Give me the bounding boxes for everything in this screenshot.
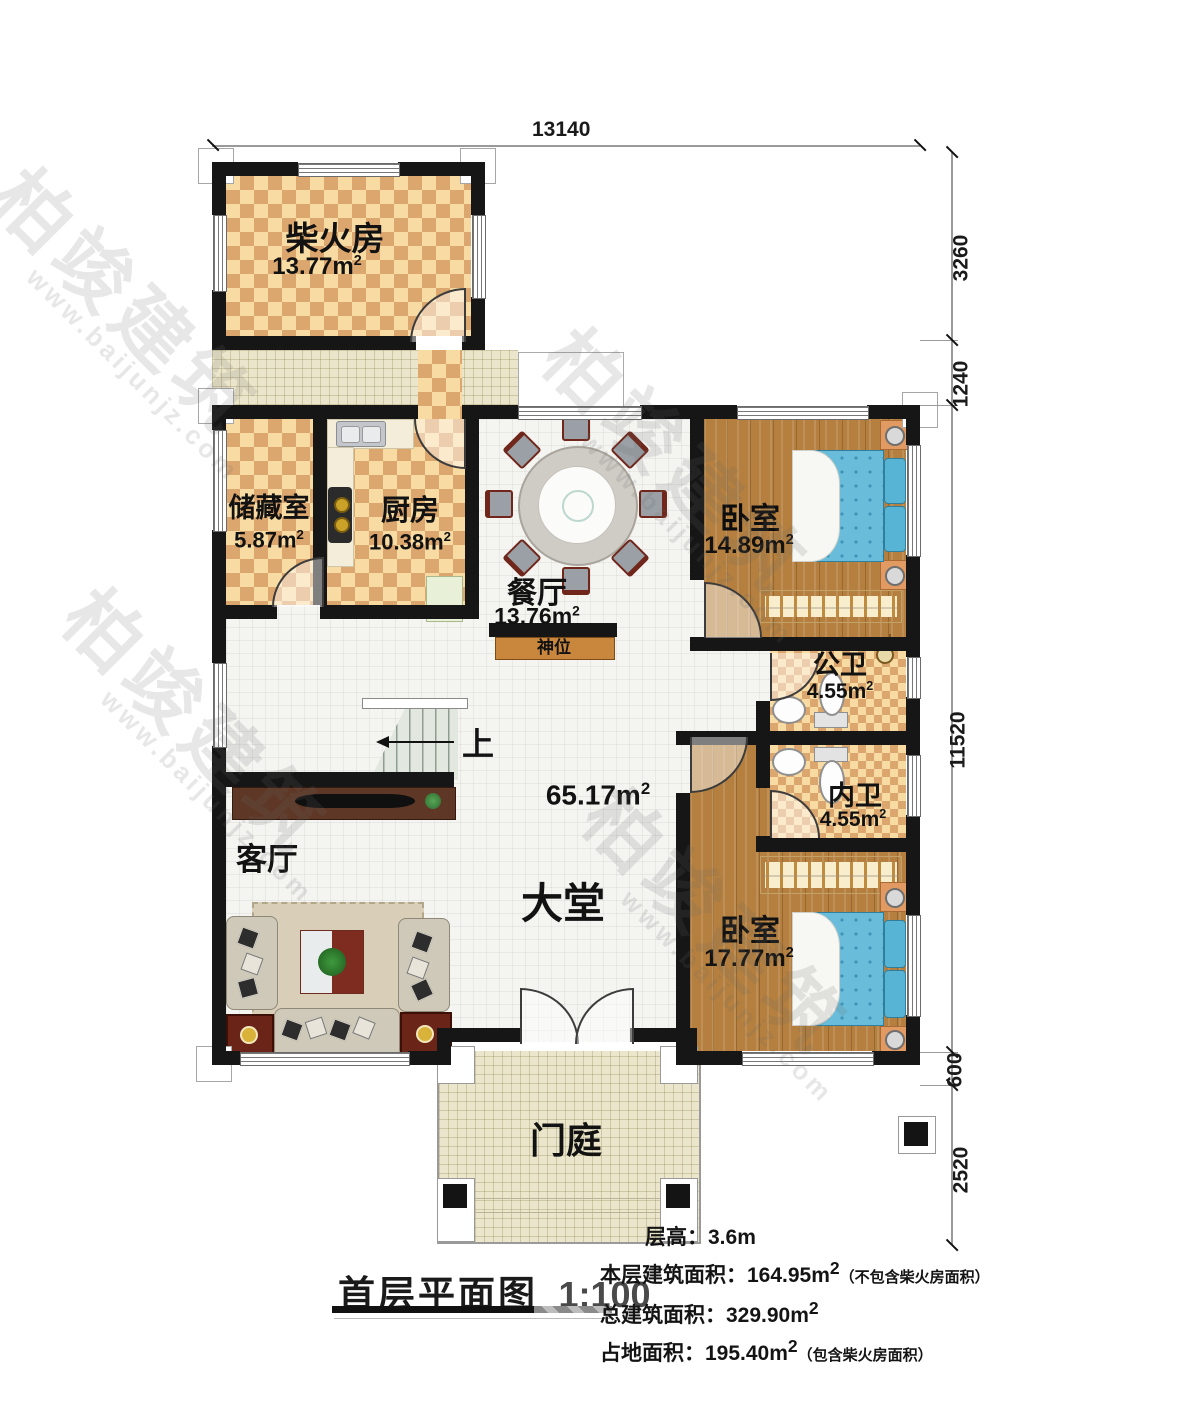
room-area-bedroom2: 17.77m2 bbox=[684, 946, 814, 971]
title-underline-thin bbox=[334, 1318, 610, 1319]
room-label-bath-private: 内卫 bbox=[800, 782, 910, 810]
wall-segment bbox=[212, 405, 418, 419]
coffee-table bbox=[300, 930, 364, 994]
room-label-kitchen: 厨房 bbox=[350, 496, 470, 526]
wall-segment bbox=[471, 176, 485, 215]
wall-segment bbox=[462, 405, 518, 419]
porch-step-line bbox=[439, 1198, 695, 1199]
stove bbox=[328, 487, 352, 543]
window bbox=[907, 915, 921, 1017]
info-floor-area: 本层建筑面积：164.95m2（不包含柴火房面积） bbox=[600, 1253, 990, 1293]
sink bbox=[772, 748, 806, 776]
room-label-porch: 门庭 bbox=[506, 1122, 626, 1160]
room-area-bath-public: 4.55m2 bbox=[785, 680, 895, 703]
bed2-pillow bbox=[884, 970, 906, 1018]
wall-segment bbox=[212, 419, 226, 430]
info-total-area: 总建筑面积：329.90m2 bbox=[600, 1293, 990, 1331]
sofa-main bbox=[274, 1008, 400, 1058]
wall-segment bbox=[226, 605, 277, 619]
room-label-bath-public: 公卫 bbox=[785, 651, 895, 679]
wall-segment bbox=[212, 336, 416, 350]
dimension-right-2: 1240 bbox=[949, 361, 973, 408]
wall-segment bbox=[690, 637, 920, 651]
wall-segment bbox=[906, 815, 920, 915]
dimension-line-top bbox=[212, 145, 920, 147]
passage-floor bbox=[418, 350, 462, 419]
dining-chair bbox=[639, 490, 667, 518]
room-area-bath-private: 4.55m2 bbox=[798, 808, 908, 831]
porch-post-core bbox=[443, 1184, 467, 1208]
window bbox=[907, 657, 921, 699]
stairs-arrow-line bbox=[388, 741, 454, 743]
room-area-dining: 13.76m2 bbox=[477, 604, 597, 628]
room-label-hall: 大堂 bbox=[503, 882, 623, 926]
dimension-top-width: 13140 bbox=[532, 118, 590, 142]
window bbox=[742, 1052, 874, 1066]
room-label-bedroom2: 卧室 bbox=[690, 916, 810, 948]
window bbox=[907, 445, 921, 557]
title-underline bbox=[332, 1306, 534, 1313]
room-label-firewood: 柴火房 bbox=[245, 222, 425, 257]
wall-segment bbox=[398, 162, 485, 176]
window bbox=[518, 406, 642, 420]
wardrobe1 bbox=[760, 590, 902, 623]
dimension-right-1: 3260 bbox=[949, 235, 973, 282]
bed2-pillow bbox=[884, 920, 906, 968]
wall-segment bbox=[756, 838, 920, 852]
wall-segment bbox=[640, 405, 737, 419]
wall-segment bbox=[756, 745, 770, 788]
wall-segment bbox=[212, 1051, 240, 1065]
wall-segment bbox=[906, 419, 920, 445]
room-label-storage: 储藏室 bbox=[214, 494, 324, 522]
dimension-right-5: 2520 bbox=[949, 1147, 973, 1194]
window bbox=[213, 215, 227, 292]
wall-segment bbox=[212, 176, 226, 215]
wall-segment bbox=[437, 1028, 451, 1065]
room-area-firewood: 13.77m2 bbox=[227, 254, 407, 279]
info-floor-height: 层高：3.6m bbox=[600, 1222, 990, 1253]
armchair-right bbox=[398, 918, 450, 1012]
stairs-up-label: 上 bbox=[458, 728, 498, 762]
wall-segment bbox=[212, 746, 226, 1051]
room-area-kitchen: 10.38m2 bbox=[350, 530, 470, 553]
stairs-arrow-head bbox=[376, 736, 389, 748]
wall-segment bbox=[676, 731, 690, 737]
corridor-floor bbox=[212, 350, 518, 407]
wall-segment bbox=[867, 405, 920, 419]
wall-segment bbox=[906, 1015, 920, 1051]
porch-post-core bbox=[666, 1184, 690, 1208]
nightstand bbox=[880, 882, 908, 912]
window bbox=[240, 1052, 410, 1066]
exterior-step bbox=[518, 352, 624, 407]
info-ground-area: 占地面积：195.40m2（包含柴火房面积） bbox=[600, 1331, 990, 1371]
room-area-storage: 5.87m2 bbox=[214, 528, 324, 551]
wall-segment bbox=[906, 697, 920, 755]
wall-segment bbox=[320, 605, 479, 619]
window bbox=[298, 163, 400, 177]
nightstand bbox=[880, 560, 908, 590]
window bbox=[472, 215, 486, 299]
dining-chair bbox=[485, 490, 513, 518]
window bbox=[213, 663, 227, 748]
porch-step-line bbox=[439, 1212, 695, 1213]
bed1-pillow bbox=[884, 458, 906, 504]
wall-segment bbox=[676, 793, 690, 1065]
stairs-landing bbox=[362, 698, 468, 709]
room-area-bedroom1: 14.89m2 bbox=[684, 533, 814, 558]
kitchen-sink bbox=[336, 421, 386, 447]
shrine-label: 神位 bbox=[495, 639, 613, 657]
window bbox=[737, 406, 869, 420]
dimension-right-3: 11520 bbox=[947, 711, 971, 768]
bed1-pillow bbox=[884, 506, 906, 552]
room-label-bedroom1: 卧室 bbox=[690, 504, 810, 536]
dimension-right-4: 600 bbox=[944, 1052, 968, 1087]
armchair-left bbox=[226, 916, 278, 1010]
floor-plan: 柴火房 13.77m2 储藏室 5.87m2 厨房 10.38m2 餐厅 13.… bbox=[0, 0, 1200, 1426]
tv-wall bbox=[224, 772, 454, 787]
wall-segment bbox=[212, 162, 298, 176]
room-label-living: 客厅 bbox=[207, 844, 327, 877]
room-area-hall: 65.17m2 bbox=[528, 780, 668, 810]
wall-segment bbox=[872, 1051, 920, 1065]
pillar-marker-core bbox=[904, 1122, 928, 1146]
info-block: 层高：3.6m 本层建筑面积：164.95m2（不包含柴火房面积） 总建筑面积：… bbox=[600, 1222, 990, 1371]
tv-cabinet bbox=[232, 787, 456, 820]
nightstand bbox=[880, 1026, 908, 1052]
